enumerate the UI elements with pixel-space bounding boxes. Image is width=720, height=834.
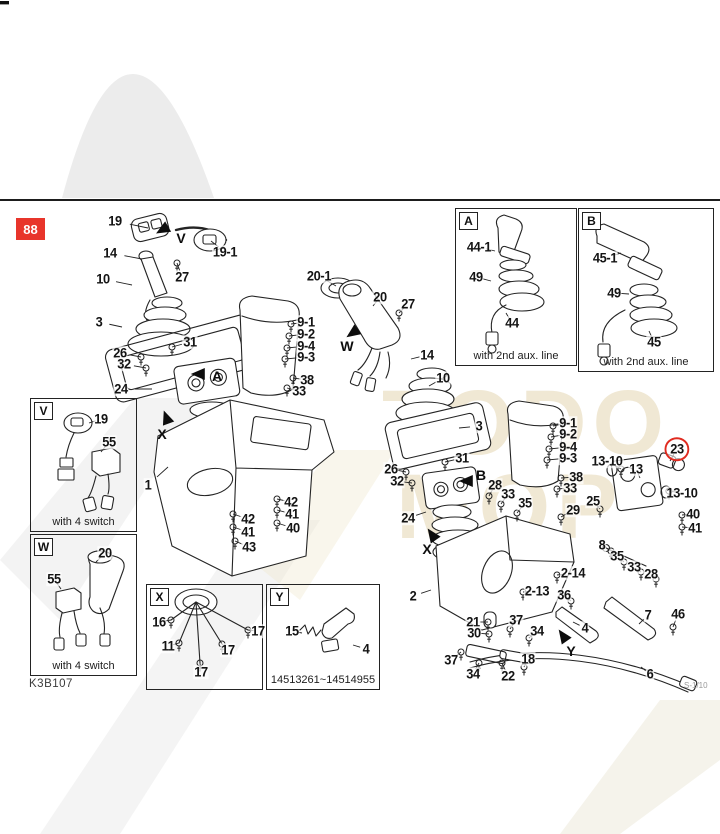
drawing-code: K3B107 bbox=[29, 678, 73, 690]
page-chrome: 88 K3B107 S-1/10 bbox=[0, 0, 720, 834]
parts-diagram-page: TODO MOP bbox=[0, 0, 720, 834]
sheet-code: S-1/10 bbox=[684, 681, 708, 690]
top-rule bbox=[0, 199, 720, 201]
page-number-badge: 88 bbox=[16, 218, 45, 240]
